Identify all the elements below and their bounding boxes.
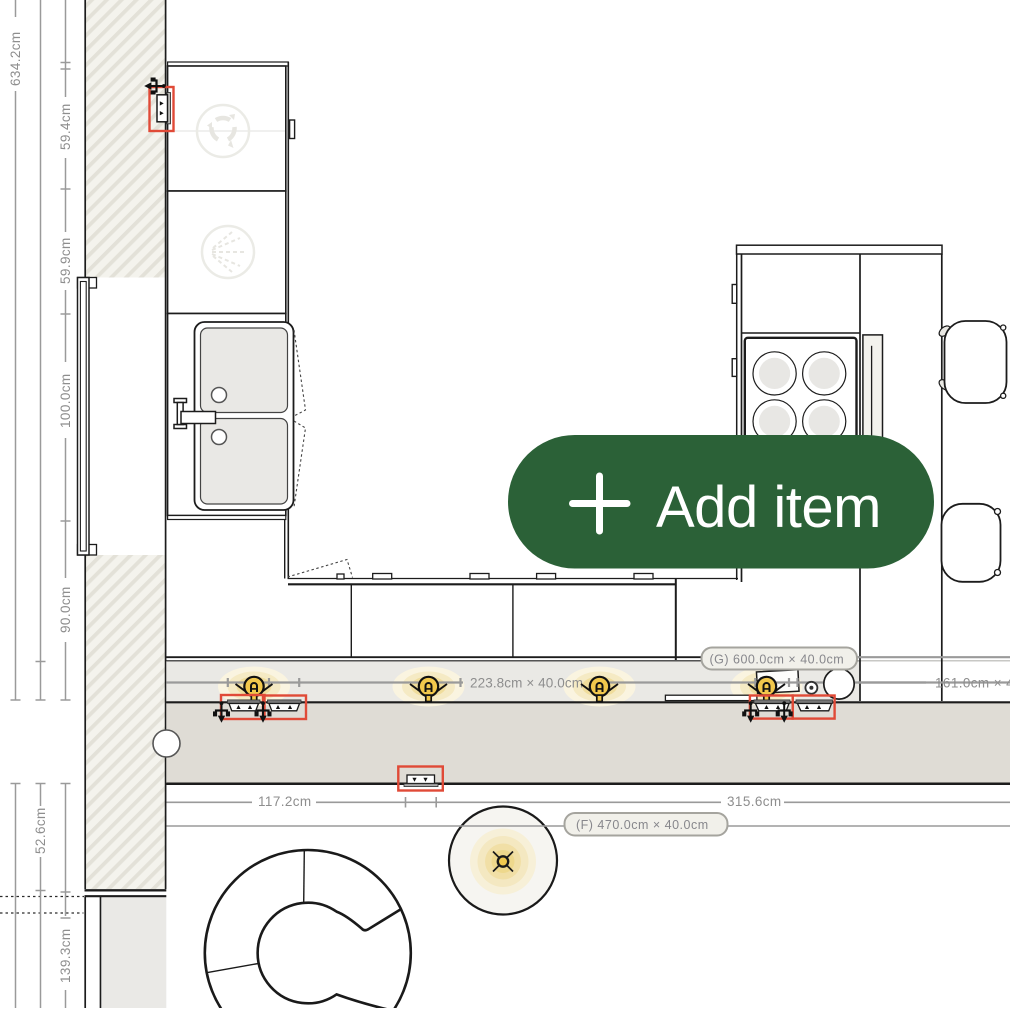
svg-text:90.0cm: 90.0cm xyxy=(58,586,73,633)
svg-text:634.2cm: 634.2cm xyxy=(8,31,23,86)
svg-text:100.0cm: 100.0cm xyxy=(58,373,73,428)
svg-text:315.6cm: 315.6cm xyxy=(727,794,782,809)
svg-text:139.3cm: 139.3cm xyxy=(58,928,73,983)
svg-text:52.6cm: 52.6cm xyxy=(33,807,48,854)
svg-text:117.2cm: 117.2cm xyxy=(258,794,312,809)
svg-text:(G) 600.0cm × 40.0cm: (G) 600.0cm × 40.0cm xyxy=(710,653,845,667)
svg-text:59.9cm: 59.9cm xyxy=(58,237,73,284)
svg-text:(F) 470.0cm × 40.0cm: (F) 470.0cm × 40.0cm xyxy=(576,818,709,832)
svg-text:59.4cm: 59.4cm xyxy=(58,103,73,150)
svg-text:223.8cm × 40.0cm: 223.8cm × 40.0cm xyxy=(470,676,583,691)
svg-text:161.0cm × 40: 161.0cm × 40 xyxy=(935,676,1010,691)
svg-text:Add item: Add item xyxy=(656,475,881,540)
